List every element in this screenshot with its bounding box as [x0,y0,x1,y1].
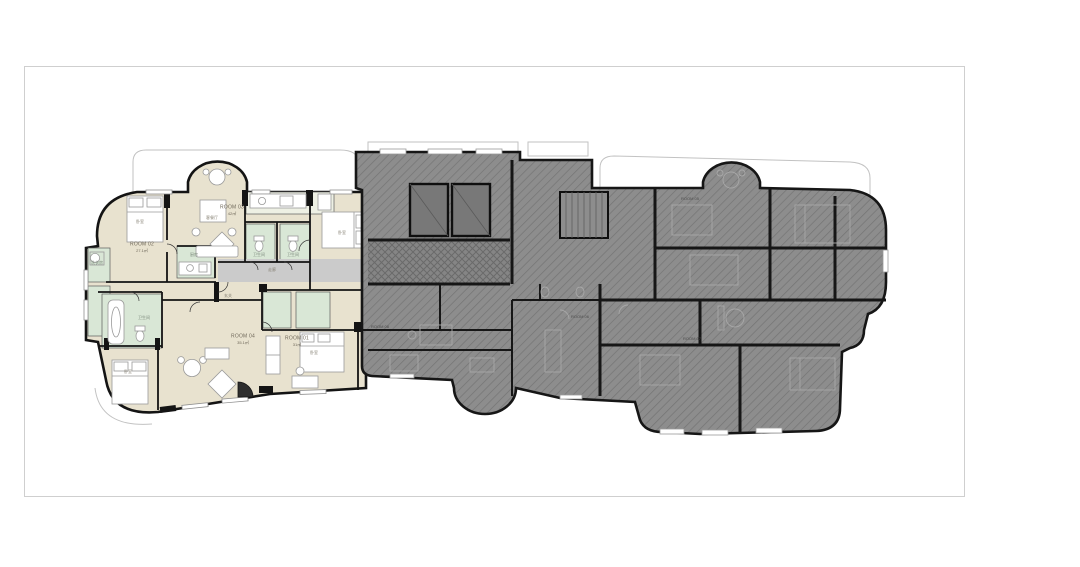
dimmed-wing [356,149,888,435]
floor-plan-drawing [0,0,1080,567]
highlighted-unit [84,162,390,413]
floor-plan-page: ROOM 02 27.1㎡ ROOM 03 42㎡ ROOM 04 35.1㎡ … [0,0,1080,567]
dimmed-corridor [368,240,510,284]
